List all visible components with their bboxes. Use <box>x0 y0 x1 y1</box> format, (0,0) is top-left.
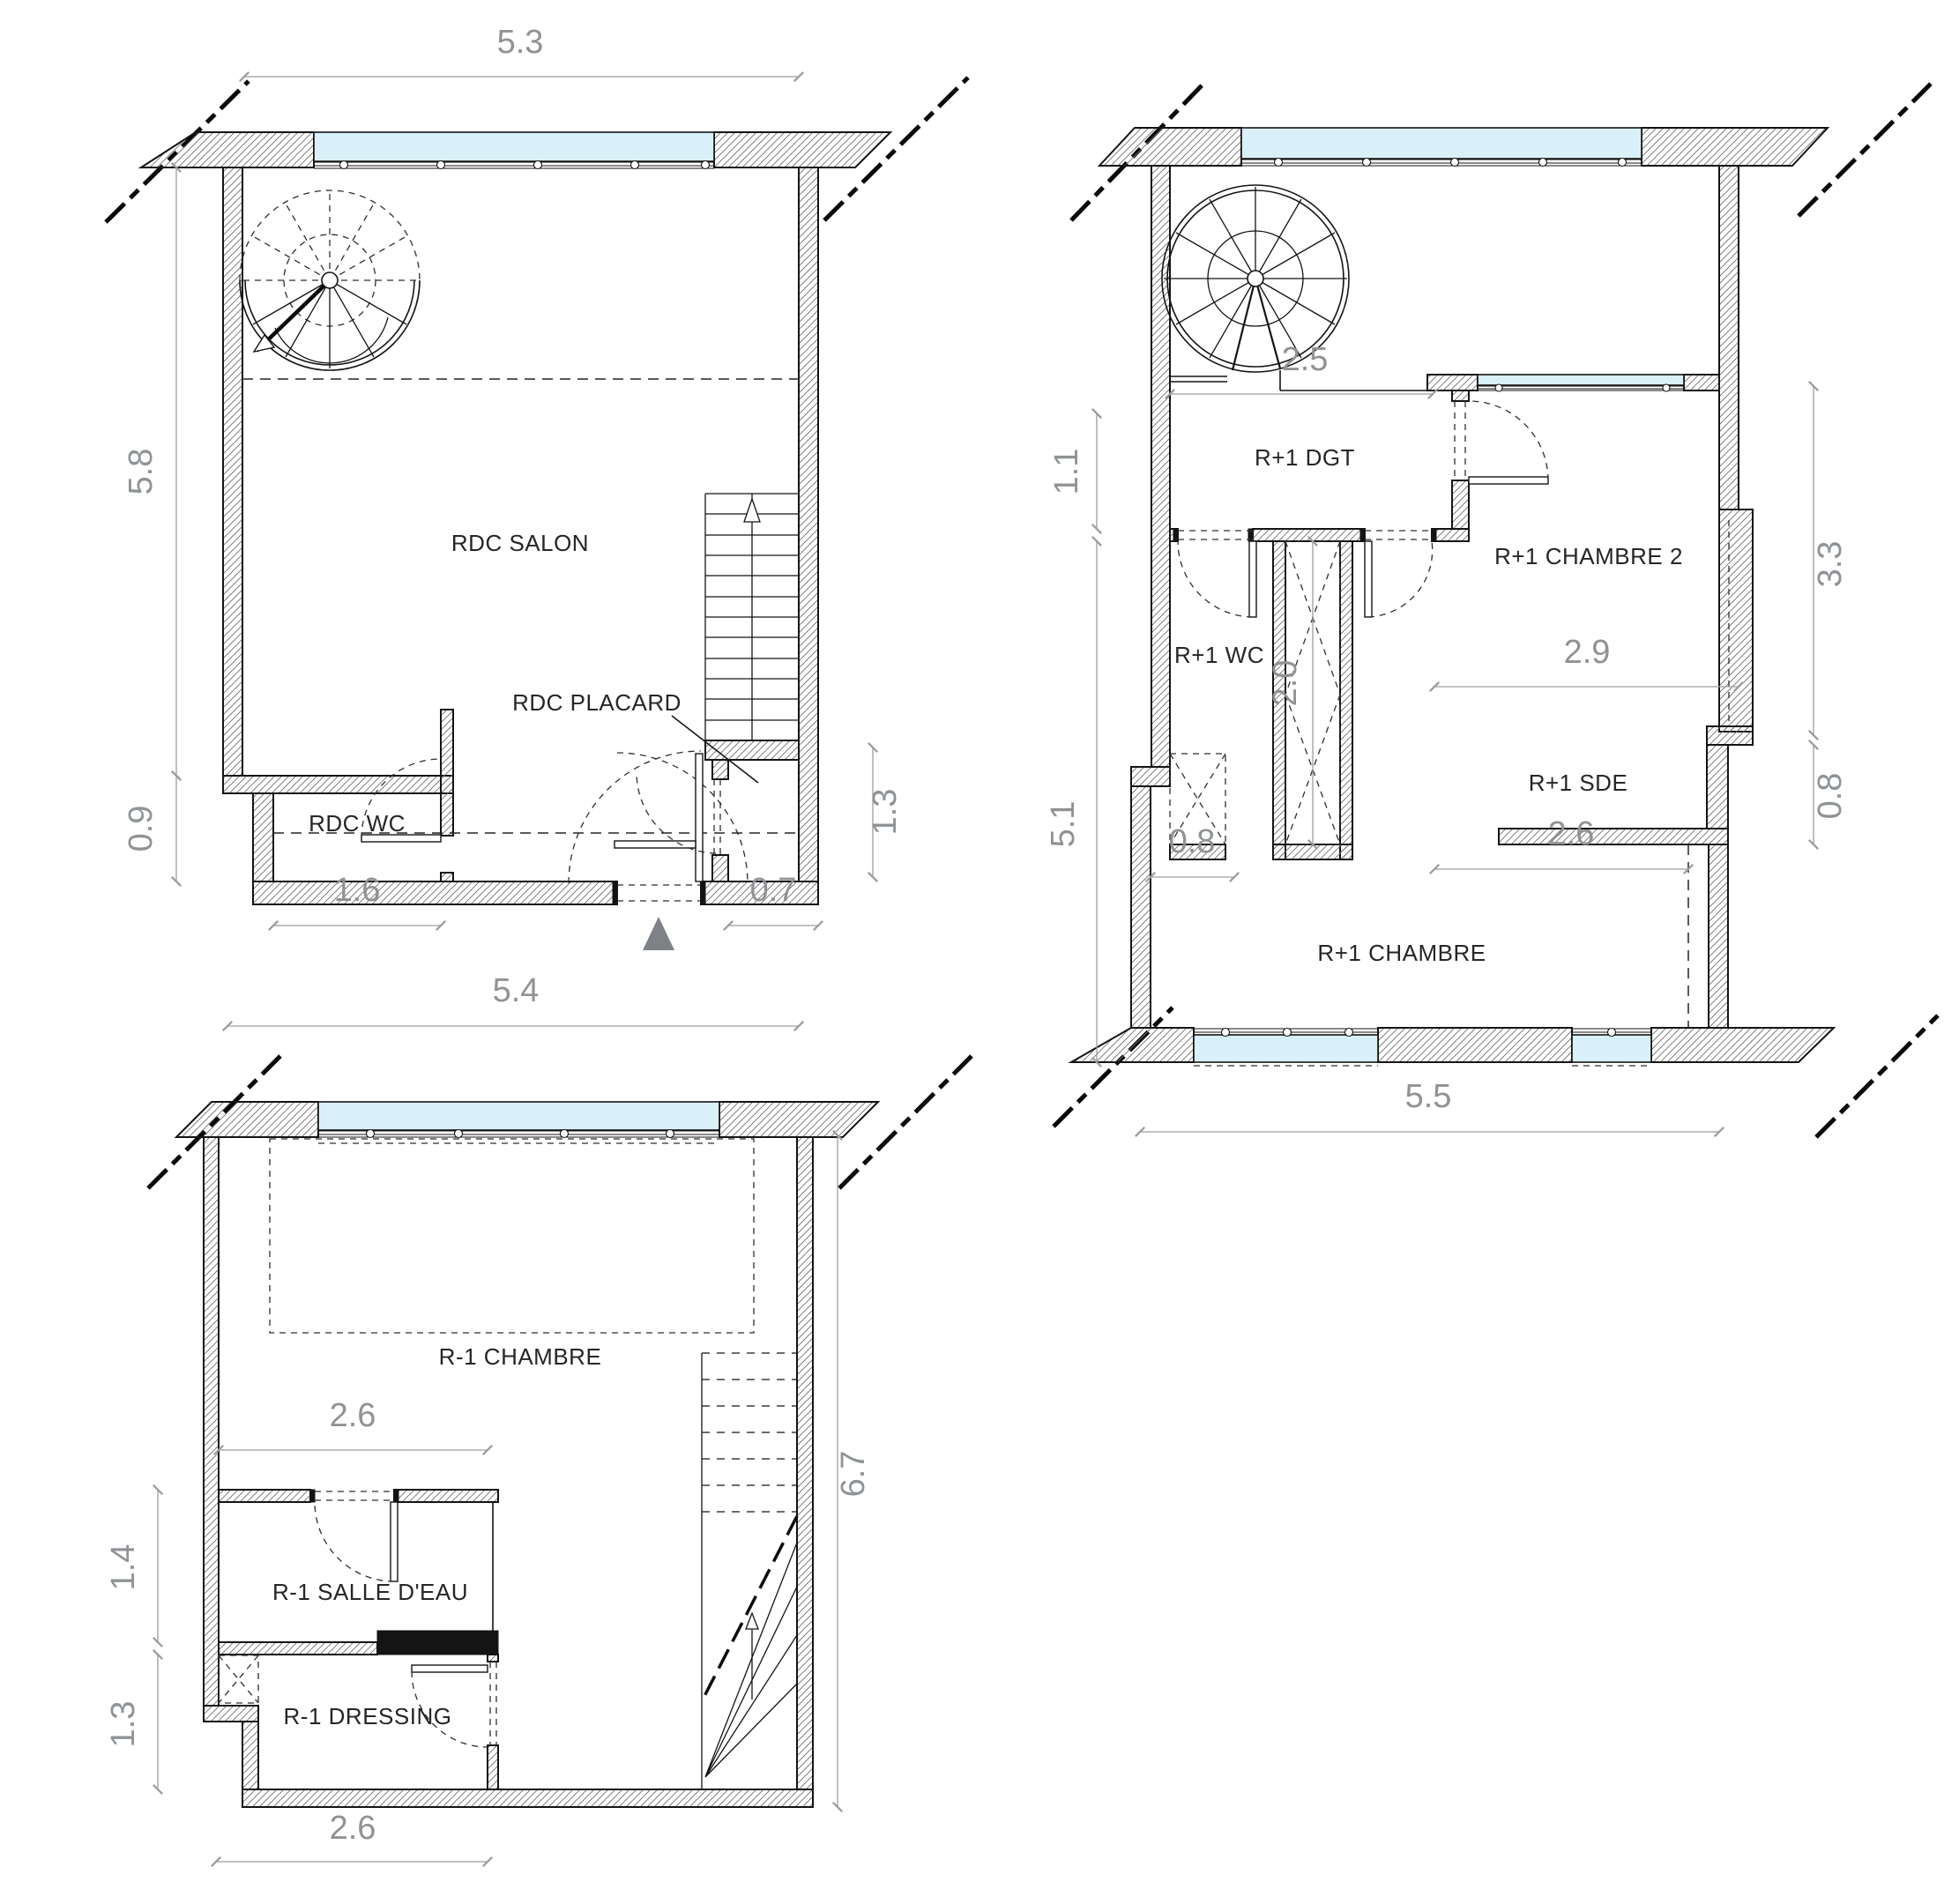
room-label-r1plus-wc: R+1 WC <box>1174 642 1264 668</box>
window-r1plus-south-2 <box>1572 1029 1651 1067</box>
dim-r1-dressing-height: 1.3 <box>105 1701 142 1748</box>
spiral-stair-rdc <box>240 190 420 370</box>
doors-rdc <box>361 751 748 901</box>
room-label-r1plus-dgt: R+1 DGT <box>1255 444 1355 471</box>
dim-rdc-width-top: 5.3 <box>497 24 544 61</box>
plan-r-plus-1: R+1 DGT R+1 WC R+1 CHAMBRE 2 R+1 SDE R+1… <box>1045 84 1938 1137</box>
doors-r1plus <box>1178 401 1548 617</box>
ceiling-opening-dashed <box>270 1139 754 1333</box>
room-label-rdc-placard: RDC PLACARD <box>512 689 682 716</box>
dim-rdc-placard-height: 1.3 <box>867 789 904 836</box>
room-label-rdc-wc: RDC WC <box>309 810 406 837</box>
floor-plan-drawing: RDC SALON RDC PLACARD RDC WC 5.3 5.8 0.9… <box>0 0 1944 1904</box>
dim-r1plus-sde-width: 2.6 <box>1548 815 1595 852</box>
dim-rdc-height-left: 5.8 <box>123 449 160 495</box>
dim-r1plus-closet-depth: 2.0 <box>1267 660 1304 707</box>
dim-rdc-wc-height: 0.9 <box>123 806 160 852</box>
walls-r-plus-1 <box>1071 128 1834 1062</box>
window-r1plus-north <box>1241 128 1642 167</box>
window-r-1-north <box>318 1102 719 1143</box>
room-label-r1plus-chambre2: R+1 CHAMBRE 2 <box>1494 543 1683 569</box>
cut-line-icon <box>1799 84 1931 216</box>
room-label-r1plus-sde: R+1 SDE <box>1529 770 1628 796</box>
dim-rdc-entry-right: 0.7 <box>750 872 797 909</box>
dim-r1-dressing-width: 2.6 <box>330 1810 376 1847</box>
dim-r1-salle-width: 2.6 <box>330 1397 376 1434</box>
dim-rdc-wc-width: 1.6 <box>334 872 381 909</box>
room-label-r1-dressing: R-1 DRESSING <box>284 1703 452 1729</box>
dim-r1-salle-height: 1.4 <box>105 1544 142 1591</box>
plan-rdc: RDC SALON RDC PLACARD RDC WC 5.3 5.8 0.9… <box>106 24 968 950</box>
dim-r1plus-wc-width: 0.8 <box>1169 823 1216 860</box>
walls-r-1 <box>176 1102 878 1807</box>
dim-r1plus-spiral-width: 2.5 <box>1282 341 1329 378</box>
window-rdc-north <box>314 132 714 169</box>
stair-r-1 <box>702 1353 797 1789</box>
dim-r1plus-sde-height: 0.8 <box>1812 773 1849 820</box>
dim-r1plus-chambre2-width: 2.9 <box>1564 634 1611 671</box>
room-label-r1-salle-eau: R-1 SALLE D'EAU <box>272 1579 468 1605</box>
cut-line-icon <box>1816 1015 1938 1137</box>
window-chambre2 <box>1478 375 1684 391</box>
cut-line-icon <box>839 1056 972 1188</box>
straight-stair-rdc <box>705 494 799 760</box>
dim-r1plus-left-height: 5.1 <box>1045 801 1082 848</box>
closet-box-r-1 <box>219 1655 258 1703</box>
room-label-rdc-salon: RDC SALON <box>451 530 589 556</box>
dim-r1plus-width-bottom: 5.5 <box>1405 1078 1452 1115</box>
dim-r1plus-dgt-height: 1.1 <box>1048 449 1085 495</box>
entry-triangle-icon <box>643 917 674 950</box>
dim-r1-height-right: 6.7 <box>835 1451 872 1498</box>
dim-r1-width-top: 5.4 <box>493 972 540 1009</box>
cut-line-icon <box>1054 1008 1173 1127</box>
dim-r1plus-chambre2-height: 3.3 <box>1812 541 1849 588</box>
room-label-r1-chambre: R-1 CHAMBRE <box>439 1343 602 1370</box>
walls-rdc <box>141 132 890 904</box>
plan-r-1: R-1 CHAMBRE R-1 SALLE D'EAU R-1 DRESSING… <box>105 972 972 1862</box>
window-r1plus-south-1 <box>1194 1029 1378 1067</box>
room-label-r1plus-chambre: R+1 CHAMBRE <box>1317 940 1486 966</box>
